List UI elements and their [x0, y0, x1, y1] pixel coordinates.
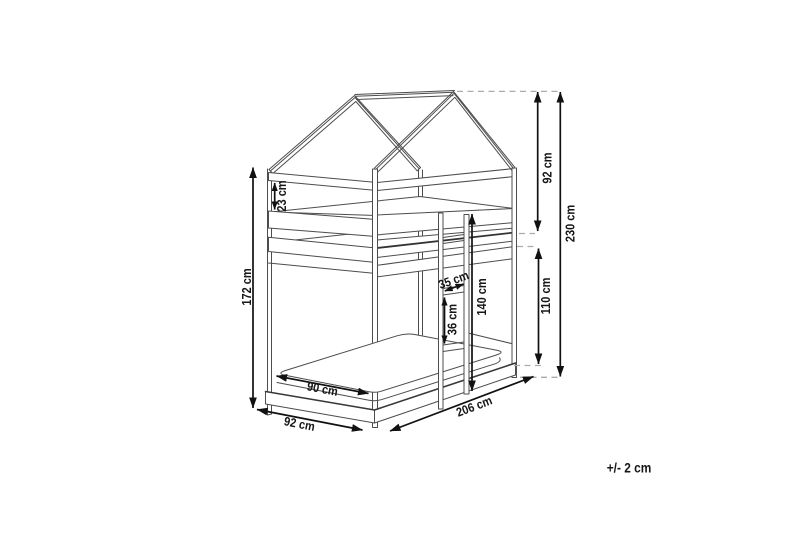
- svg-text:+/- 2 cm: +/- 2 cm: [607, 460, 652, 476]
- svg-text:140 cm: 140 cm: [475, 278, 489, 315]
- svg-text:110 cm: 110 cm: [539, 278, 553, 315]
- svg-text:172 cm: 172 cm: [240, 268, 254, 305]
- svg-text:36 cm: 36 cm: [446, 304, 460, 335]
- svg-text:23 cm: 23 cm: [275, 180, 289, 211]
- svg-text:230 cm: 230 cm: [564, 205, 578, 242]
- svg-text:92 cm: 92 cm: [541, 152, 555, 183]
